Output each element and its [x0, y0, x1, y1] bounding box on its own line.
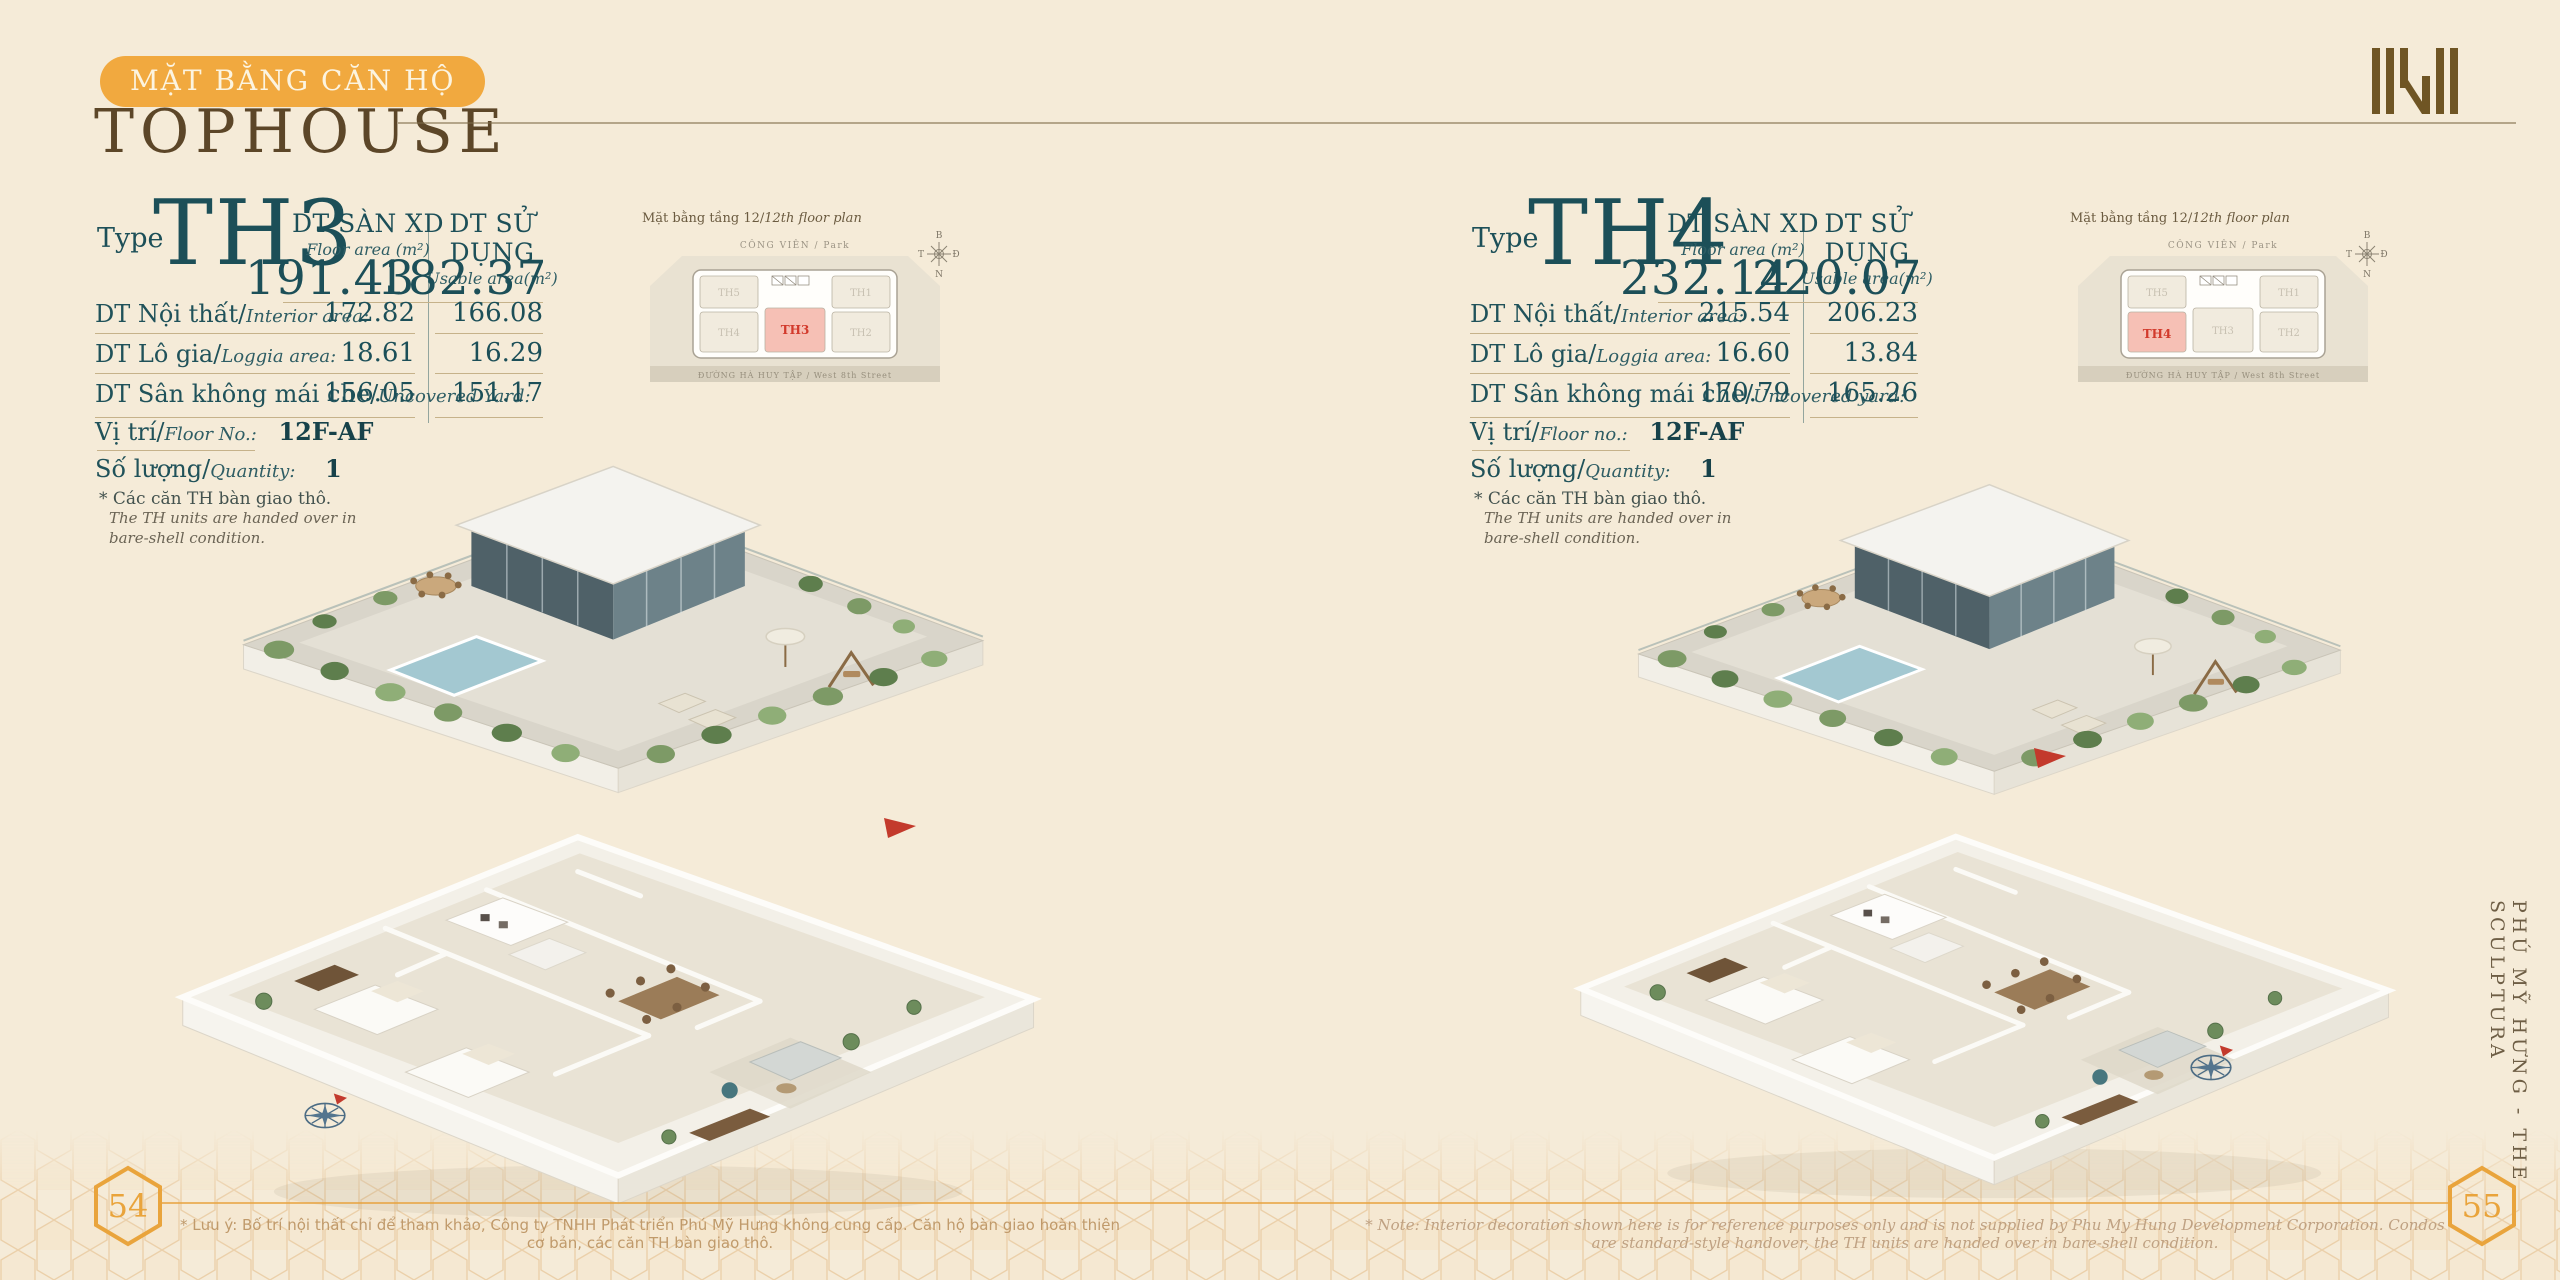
table-row-floor-no: Vị trí/Floor no.: 12F-AF — [1470, 415, 1922, 447]
compass-rose-icon — [292, 1082, 358, 1138]
row-underline — [435, 333, 543, 334]
svg-text:55: 55 — [2462, 1187, 2503, 1225]
row-value-2: 165.26 — [1818, 378, 1918, 408]
row-underline — [1470, 333, 1790, 334]
header-rule — [398, 122, 2516, 124]
street-label: ĐƯỜNG HÀ HUY TẬP / West 8th Street — [2126, 371, 2320, 380]
row-label-vi: DT Nội thất/ — [95, 300, 246, 328]
row-label-vi: DT Nội thất/ — [1470, 300, 1621, 328]
red-arrow-marker — [880, 812, 920, 842]
row-value-2: 16.29 — [443, 338, 543, 368]
svg-text:Đ: Đ — [2380, 250, 2387, 260]
table-row-loggia: DT Lô gia/Loggia area: 16.60 13.84 — [1470, 338, 1922, 370]
park-label: CÔNG VIÊN / Park — [740, 239, 850, 251]
row-value-1: 172.82 — [315, 298, 415, 328]
row-label-en: Floor no.: — [1540, 424, 1628, 445]
brand-logo-icon — [2368, 48, 2464, 118]
svg-text:T: T — [2346, 250, 2352, 260]
row-value-1: 16.60 — [1690, 338, 1790, 368]
row-value-2: 13.84 — [1818, 338, 1918, 368]
svg-text:B: B — [936, 231, 943, 241]
park-label: CÔNG VIÊN / Park — [2168, 239, 2278, 251]
street-label: ĐƯỜNG HÀ HUY TẬP / West 8th Street — [698, 371, 892, 380]
footer-rule — [158, 1202, 2450, 1204]
row-label-vi: Vị trí/ — [1470, 418, 1540, 446]
page-title: TOPHOUSE — [94, 102, 509, 162]
apartment-3d-render-th4 — [1520, 452, 2430, 1202]
unit-label-br: TH2 — [2278, 328, 2300, 339]
core-hatch — [772, 276, 809, 285]
row-value-2: 206.23 — [1818, 298, 1918, 328]
row-value-2: 166.08 — [443, 298, 543, 328]
svg-text:Mặt bằng tầng 12/12th floor pl: Mặt bằng tầng 12/12th floor plan — [642, 210, 862, 226]
table-row-uncovered-yard: DT Sân không mái che/Uncovered Yard: 156… — [95, 378, 547, 410]
svg-text:T: T — [918, 250, 924, 260]
row-value-1: 215.54 — [1690, 298, 1790, 328]
svg-text:Mặt bằng tầng 12/12th floor pl: Mặt bằng tầng 12/12th floor plan — [2070, 210, 2290, 226]
compass-rose-icon — [2178, 1034, 2244, 1090]
core-hatch — [2200, 276, 2237, 285]
svg-text:Đ: Đ — [952, 250, 959, 260]
unit-label-tl: TH5 — [718, 288, 740, 299]
unit-label-bc: TH3 — [2212, 326, 2234, 337]
footnote-vietnamese: * Lưu ý: Bố trí nội thất chỉ để tham khả… — [180, 1216, 1120, 1252]
svg-text:54: 54 — [108, 1187, 149, 1225]
floor-plan-inset-th4: Mặt bằng tầng 12/12th floor plan B Đ N T… — [2068, 208, 2398, 423]
row-underline — [1810, 333, 1918, 334]
table-row-interior: DT Nội thất/Interior area: 172.82 166.08 — [95, 298, 547, 330]
table-row-loggia: DT Lô gia/Loggia area: 18.61 16.29 — [95, 338, 547, 370]
apartment-3d-render-th3 — [118, 432, 1078, 1222]
row-value-1: 18.61 — [315, 338, 415, 368]
unit-label-tr: TH1 — [2278, 288, 2300, 299]
row-underline — [95, 333, 415, 334]
table-row-interior: DT Nội thất/Interior area: 215.54 206.23 — [1470, 298, 1922, 330]
floor-no-value: 12F-AF — [1649, 417, 1744, 446]
unit-label-br: TH2 — [850, 328, 872, 339]
unit-label-tl: TH5 — [2146, 288, 2168, 299]
inset-title-vi: Mặt bằng tầng 12/ — [642, 210, 765, 226]
svg-text:N: N — [2363, 270, 2371, 280]
inset-title-en: 12th floor plan — [2192, 211, 2290, 226]
inset-title-vi: Mặt bằng tầng 12/ — [2070, 210, 2193, 226]
floor-plan-inset-th3: Mặt bằng tầng 12/12th floor plan B Đ N T… — [640, 208, 970, 423]
row-value-1: 156.05 — [315, 378, 415, 408]
table-row-uncovered-yard: DT Sân không mái che/Uncovered yard: 170… — [1470, 378, 1922, 410]
row-underline — [95, 373, 415, 374]
unit-label-bc: TH3 — [781, 323, 810, 337]
row-label-vi: DT Lô gia/ — [1470, 340, 1596, 368]
page-number-left: 54 — [90, 1164, 166, 1248]
row-label-vi: DT Lô gia/ — [95, 340, 221, 368]
svg-text:N: N — [935, 270, 943, 280]
red-arrow-marker — [2030, 742, 2070, 772]
footnote-english: * Note: Interior decoration shown here i… — [1360, 1216, 2450, 1252]
inset-title-en: 12th floor plan — [764, 211, 862, 226]
unit-label-bl: TH4 — [2143, 327, 2172, 341]
row-underline — [1470, 373, 1790, 374]
unit-label-tr: TH1 — [850, 288, 872, 299]
row-underline — [435, 373, 543, 374]
row-value-1: 170.79 — [1690, 378, 1790, 408]
svg-text:B: B — [2364, 231, 2371, 241]
row-underline — [1810, 373, 1918, 374]
row-underline — [1472, 450, 1630, 451]
page-number-right: 55 — [2444, 1164, 2520, 1248]
unit-label-bl: TH4 — [718, 328, 740, 339]
row-value-2: 151.17 — [443, 378, 543, 408]
